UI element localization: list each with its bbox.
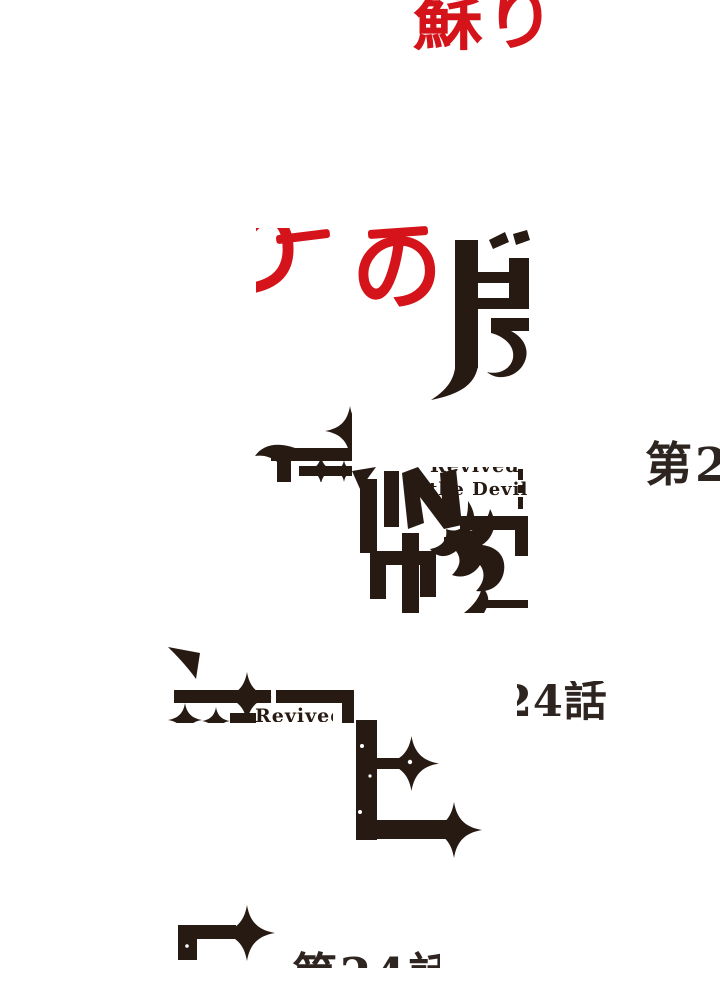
red-title-text-top: 蘇り <box>413 0 563 54</box>
episode-number-middle: 24話 <box>517 681 618 723</box>
subtitle-the-devil: the Devil <box>429 481 528 499</box>
gothic-kanji-fragment-upper <box>423 230 533 400</box>
four-point-star-icon <box>426 802 482 858</box>
red-title-fragment-ri: り <box>256 228 332 302</box>
episode-number-right: 第2 <box>645 442 720 489</box>
bottom-corner-fragment <box>173 904 285 962</box>
red-title-fragment-top: 蘇り <box>413 0 563 64</box>
manga-title-page: 蘇り り の <box>0 0 720 991</box>
gothic-kanji-corner-fragment <box>255 404 352 482</box>
four-point-star-icon <box>219 905 275 961</box>
jou-glyph-fragment <box>350 716 482 858</box>
subtitle-revived-top: Revived <box>430 467 522 479</box>
red-title-text-ri: り <box>256 228 332 302</box>
subtitle-revived-bottom: Revived <box>255 707 333 722</box>
four-point-star-icon <box>202 707 230 723</box>
four-point-star-icon <box>333 460 352 482</box>
episode-number-bottom: 第24話 <box>292 950 440 968</box>
four-point-star-icon <box>168 703 202 723</box>
